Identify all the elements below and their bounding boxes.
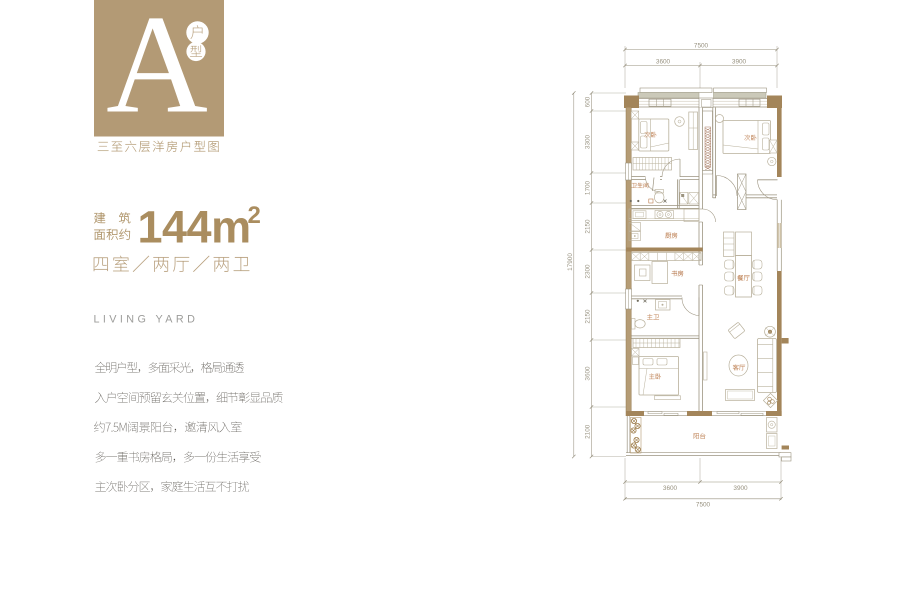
svg-text:3900: 3900 — [732, 58, 747, 65]
svg-text:LIVING YARD: LIVING YARD — [94, 314, 199, 326]
svg-text:600: 600 — [585, 96, 592, 107]
svg-text:2150: 2150 — [585, 309, 592, 324]
svg-text:3600: 3600 — [663, 485, 678, 492]
svg-text:7500: 7500 — [694, 42, 709, 49]
svg-text:1700: 1700 — [585, 180, 592, 195]
svg-text:2100: 2100 — [585, 424, 592, 439]
svg-text:144m: 144m — [138, 202, 251, 253]
svg-text:7500: 7500 — [696, 502, 711, 509]
svg-text:17900: 17900 — [567, 253, 574, 271]
svg-text:3300: 3300 — [585, 134, 592, 149]
svg-text:A: A — [106, 0, 208, 143]
svg-text:3600: 3600 — [585, 366, 592, 381]
svg-text:2: 2 — [248, 202, 261, 229]
svg-text:2300: 2300 — [585, 264, 592, 279]
svg-text:3900: 3900 — [733, 485, 748, 492]
svg-text:2150: 2150 — [585, 219, 592, 234]
svg-text:3600: 3600 — [656, 58, 671, 65]
